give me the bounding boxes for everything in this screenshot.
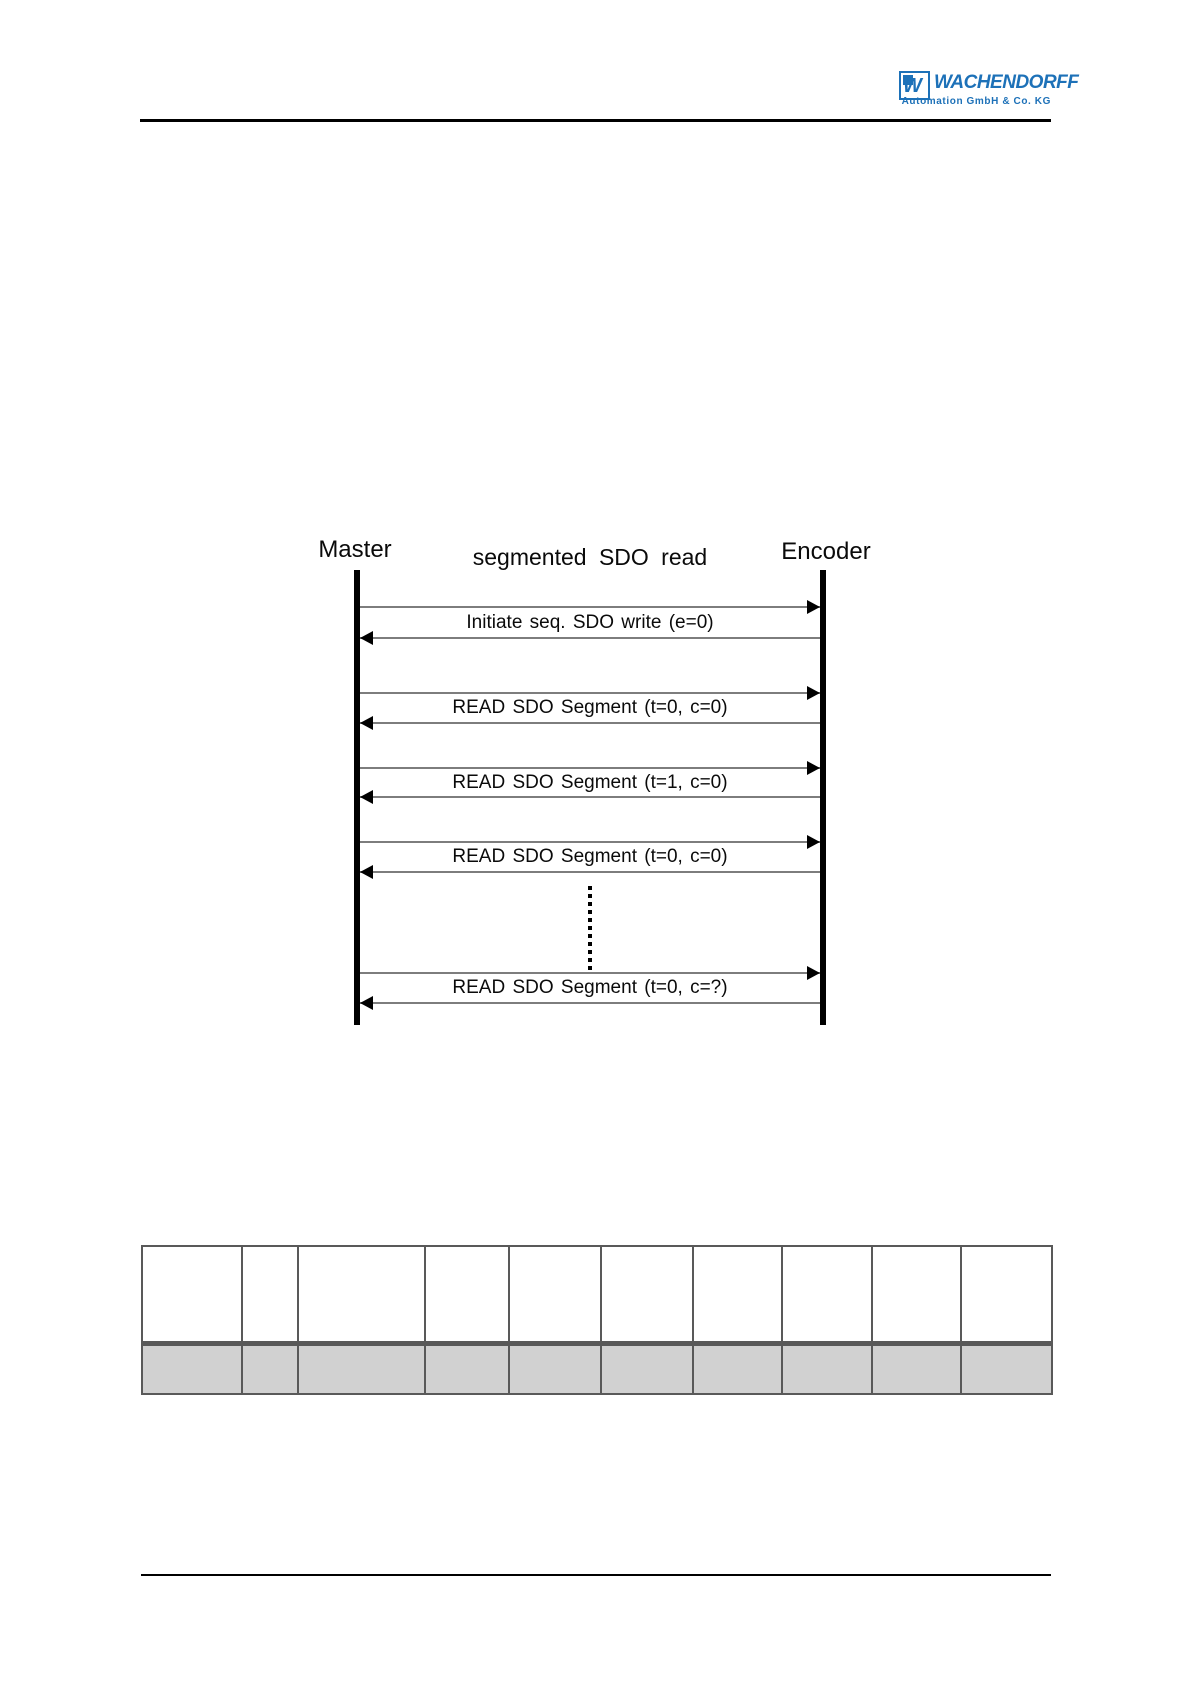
message-arrow-right <box>360 972 820 974</box>
table-header-cell <box>298 1246 425 1344</box>
arrowhead-icon <box>360 716 373 730</box>
table-header-cell <box>509 1246 601 1344</box>
message-arrow-right <box>360 692 820 694</box>
encoder-lifeline <box>820 570 826 1025</box>
table-header-cell <box>242 1246 298 1344</box>
message-arrow-left <box>360 1002 820 1004</box>
diagram-title: segmented SDO read <box>440 544 740 571</box>
message-arrow-left <box>360 796 820 798</box>
header-rule <box>140 119 1051 122</box>
footer-rule <box>141 1574 1051 1576</box>
table-header-cell <box>425 1246 509 1344</box>
table-cell <box>142 1344 242 1395</box>
message-arrow-left <box>360 722 820 724</box>
arrowhead-icon <box>360 790 373 804</box>
table-header-cell <box>872 1246 961 1344</box>
message-arrow-left <box>360 637 820 639</box>
logo-subtitle-text: Automation GmbH & Co. KG <box>902 96 1051 108</box>
actor-encoder-label: Encoder <box>746 538 906 566</box>
logo-w-icon: W <box>903 74 922 98</box>
arrowhead-icon <box>360 996 373 1010</box>
logo-brand-text: WACHENDORFF <box>934 72 1054 94</box>
message-label: READ SDO Segment (t=0, c=0) <box>360 697 820 719</box>
table-cell <box>601 1344 693 1395</box>
table-cell <box>782 1344 872 1395</box>
table-header-cell <box>961 1246 1052 1344</box>
table-header-row <box>142 1246 1052 1344</box>
table-cell <box>693 1344 782 1395</box>
table-header-cell <box>782 1246 872 1344</box>
table-header-cell <box>142 1246 242 1344</box>
continuation-dots-icon <box>588 886 592 970</box>
document-page: W WACHENDORFF Automation GmbH & Co. KG M… <box>0 0 1191 1684</box>
table-row <box>142 1344 1052 1395</box>
message-arrow-right <box>360 606 820 608</box>
message-arrow-left <box>360 871 820 873</box>
table-cell <box>872 1344 961 1395</box>
empty-data-table <box>141 1245 1053 1395</box>
actor-master-label: Master <box>275 536 435 564</box>
table-header-cell <box>693 1246 782 1344</box>
message-label: READ SDO Segment (t=0, c=0) <box>360 846 820 868</box>
message-arrow-right <box>360 841 820 843</box>
message-arrow-right <box>360 767 820 769</box>
table-cell <box>425 1344 509 1395</box>
table-cell <box>961 1344 1052 1395</box>
table-header-cell <box>601 1246 693 1344</box>
table-cell <box>509 1344 601 1395</box>
message-label: READ SDO Segment (t=1, c=0) <box>360 772 820 794</box>
table-cell <box>298 1344 425 1395</box>
message-label: READ SDO Segment (t=0, c=?) <box>360 977 820 999</box>
arrowhead-icon <box>360 865 373 879</box>
arrowhead-icon <box>360 631 373 645</box>
message-label: Initiate seq. SDO write (e=0) <box>360 612 820 634</box>
table-cell <box>242 1344 298 1395</box>
